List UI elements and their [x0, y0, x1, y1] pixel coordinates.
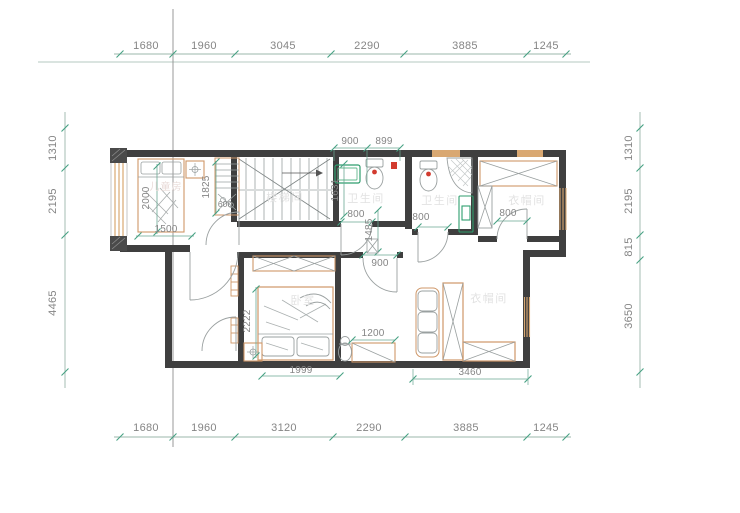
door-bathroom2 — [418, 232, 448, 262]
dim-bottom-1: 1680 — [133, 422, 159, 434]
dim-bottom-3: 3120 — [271, 422, 297, 434]
room-label-child: 儿童房 — [150, 180, 183, 193]
room-label-bedroom: 卧室 — [291, 293, 316, 307]
dim-bottom-2: 1960 — [191, 422, 217, 434]
staircase — [238, 158, 332, 220]
dim-bed-wid: 1999 — [289, 365, 312, 376]
dim-corridor-v: 1485 — [364, 218, 375, 241]
dim-child-bed-wid: 1500 — [154, 224, 177, 235]
dim-right-2: 2195 — [623, 188, 635, 214]
dim-door-cloak1: 800 — [499, 208, 517, 219]
dim-low-cabinet: 1200 — [361, 328, 384, 339]
dim-right-3: 815 — [623, 237, 635, 256]
room-label-cloak1: 衣帽间 — [508, 193, 546, 207]
corridor-cabinet-icon — [253, 256, 335, 271]
sofa-icon — [416, 288, 439, 357]
dim-top-3: 3045 — [270, 40, 296, 52]
dim-left-3: 4465 — [47, 290, 59, 316]
room-label-bath2: 卫生间 — [421, 193, 459, 207]
dim-bottom-4: 2290 — [356, 422, 382, 434]
dim-bottom-6: 1245 — [533, 422, 559, 434]
dim-door-bath2: 800 — [412, 212, 430, 223]
dim-right-1: 1310 — [623, 135, 635, 161]
dim-top-1: 1680 — [133, 40, 159, 52]
dim-wardrobe-run: 3460 — [458, 367, 481, 378]
axis-lines — [38, 9, 590, 447]
dim-chain-bottom: 1680 1960 3120 2290 3885 1245 — [114, 422, 571, 441]
hall-wall-strips — [231, 266, 238, 343]
dim-bath1-niche: 1631 — [330, 178, 341, 201]
dim-child-cabinet-depth: 600 — [218, 199, 232, 209]
dim-top-4: 2290 — [354, 40, 380, 52]
shower-icon — [447, 158, 472, 193]
dim-bath-top-a: 900 — [341, 136, 359, 147]
dim-right-4: 3650 — [623, 303, 635, 329]
floor-plan-canvas: 1680 1960 3045 2290 3885 1245 1680 1960 … — [0, 0, 740, 513]
dim-bottom-5: 3885 — [453, 422, 479, 434]
room-label-cloak2: 衣帽间 — [470, 291, 508, 305]
dim-chain-top: 1680 1960 3045 2290 3885 1245 — [114, 40, 571, 58]
wardrobe-vertical-icon — [443, 283, 463, 360]
dim-top-5: 3885 — [452, 40, 478, 52]
dim-bed-len: 2222 — [242, 309, 253, 332]
dim-door-bedroom: 900 — [371, 258, 389, 269]
wardrobe-horizontal-icon — [463, 342, 515, 361]
dim-chain-right: 1310 2195 815 3650 — [623, 112, 644, 388]
dim-left-2: 2195 — [47, 188, 59, 214]
bedroom-furniture — [244, 287, 333, 361]
dim-door-bath1: 800 — [347, 209, 365, 220]
room-label-bath1: 卫生间 — [347, 191, 385, 205]
dim-top-6: 1245 — [533, 40, 559, 52]
low-cabinet-icon — [352, 343, 395, 362]
dim-left-1: 1310 — [47, 135, 59, 161]
room-label-stair: 楼梯间 — [266, 190, 304, 204]
dim-child-cabinet: 1825 — [201, 175, 212, 198]
dim-chain-left: 1310 2195 4465 — [47, 112, 69, 388]
floor-plan-drawing: 1680 1960 3045 2290 3885 1245 1680 1960 … — [0, 0, 740, 513]
dim-top-2: 1960 — [191, 40, 217, 52]
bay-window — [111, 163, 127, 236]
stair-direction-arrow — [316, 170, 323, 177]
wall-marker — [391, 162, 397, 169]
green-cabinet-icon — [459, 196, 473, 232]
nightstand-icon — [186, 161, 204, 178]
dim-bath-top-b: 899 — [375, 136, 393, 147]
